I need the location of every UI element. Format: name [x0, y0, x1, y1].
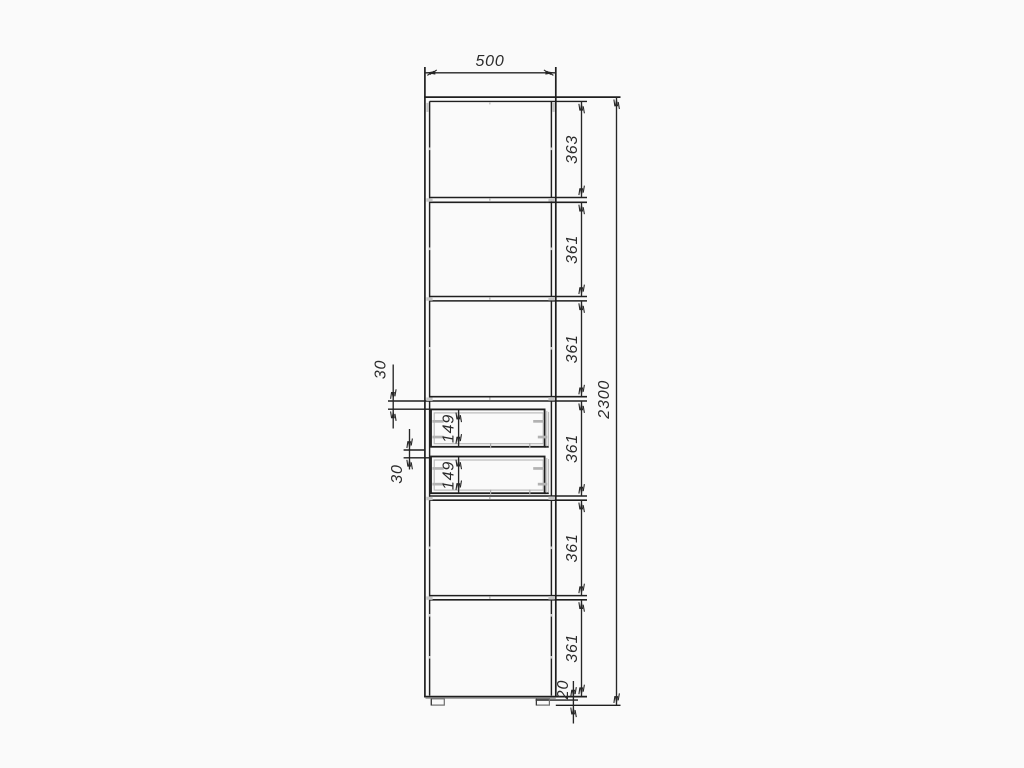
- svg-text:20: 20: [555, 680, 572, 700]
- svg-text:149: 149: [440, 414, 457, 443]
- svg-text:500: 500: [475, 53, 504, 70]
- svg-text:361: 361: [564, 235, 581, 264]
- svg-text:361: 361: [564, 634, 581, 663]
- svg-text:149: 149: [440, 461, 457, 490]
- svg-text:361: 361: [564, 334, 581, 363]
- svg-text:2300: 2300: [596, 380, 613, 420]
- svg-text:30: 30: [389, 464, 406, 483]
- svg-text:361: 361: [564, 533, 581, 562]
- svg-text:30: 30: [373, 360, 390, 379]
- svg-text:363: 363: [564, 135, 581, 164]
- svg-text:361: 361: [564, 434, 581, 463]
